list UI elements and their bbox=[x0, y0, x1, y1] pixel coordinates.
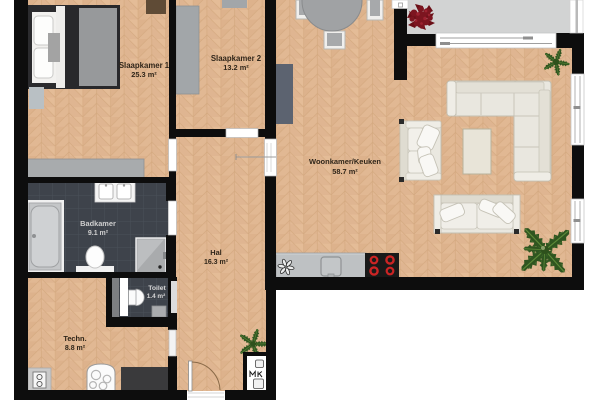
svg-text:16.3 m²: 16.3 m² bbox=[204, 259, 229, 266]
svg-text:8.8 m²: 8.8 m² bbox=[65, 345, 86, 352]
svg-text:Woonkamer/Keuken: Woonkamer/Keuken bbox=[309, 157, 381, 166]
svg-text:Slaapkamer 2: Slaapkamer 2 bbox=[211, 54, 262, 63]
svg-text:Techn.: Techn. bbox=[63, 334, 86, 343]
svg-text:58.7 m²: 58.7 m² bbox=[332, 167, 358, 176]
svg-text:Hal: Hal bbox=[210, 248, 222, 257]
svg-text:13.2 m²: 13.2 m² bbox=[223, 63, 249, 72]
svg-text:25.3 m²: 25.3 m² bbox=[131, 70, 157, 79]
svg-text:Slaapkamer 1: Slaapkamer 1 bbox=[119, 61, 170, 70]
svg-text:9.1 m²: 9.1 m² bbox=[88, 230, 109, 237]
svg-text:1.4 m²: 1.4 m² bbox=[147, 293, 165, 300]
svg-text:Badkamer: Badkamer bbox=[80, 219, 116, 228]
svg-text:Toilet: Toilet bbox=[148, 285, 166, 292]
